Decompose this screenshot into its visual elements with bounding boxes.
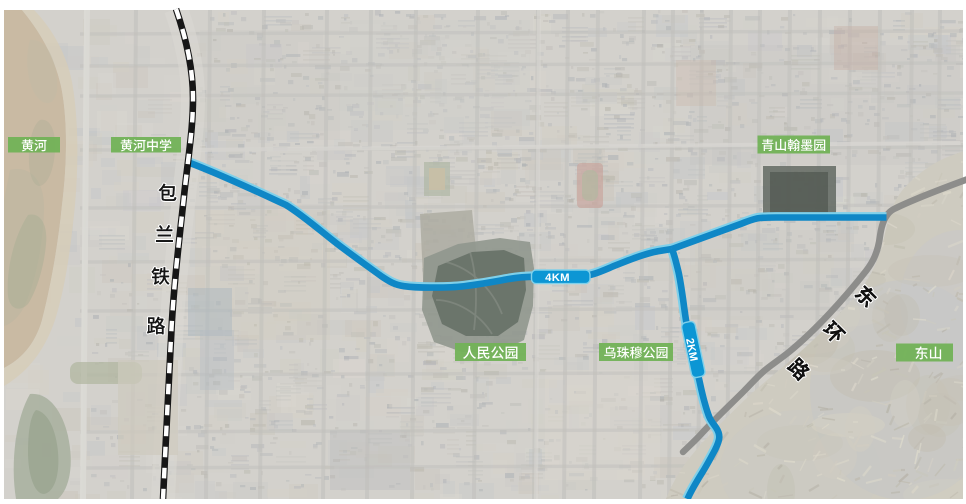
svg-text:4KM: 4KM — [545, 272, 570, 284]
